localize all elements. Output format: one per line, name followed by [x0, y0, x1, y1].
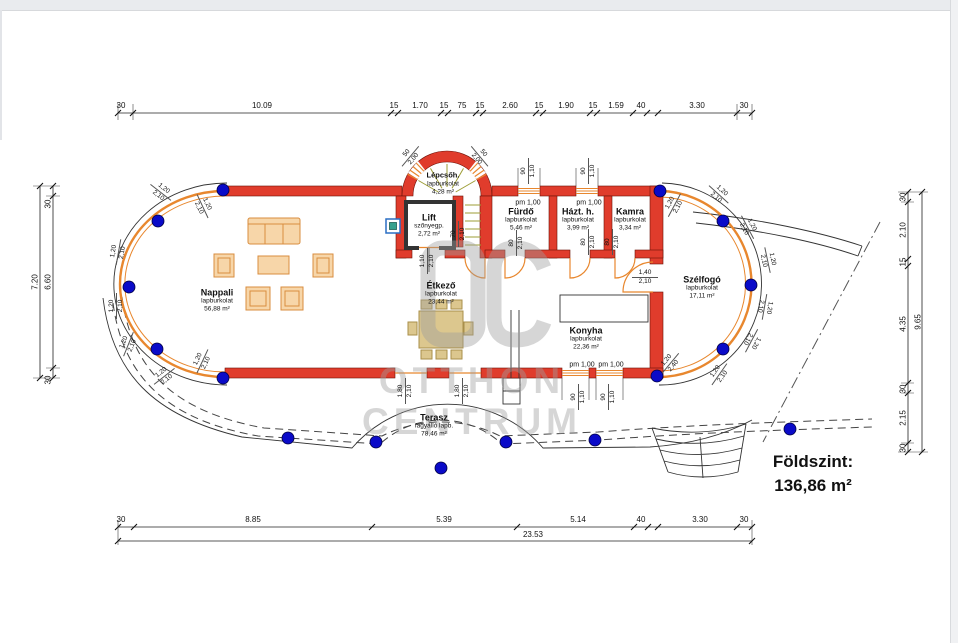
opening-tag-16: 1,802,10 [454, 378, 470, 404]
opening-tag-24: 901,10 [580, 158, 596, 184]
dim-top-5: 75 [458, 101, 467, 110]
dim-right-5: 2.15 [899, 410, 908, 426]
door-swings [465, 258, 653, 292]
pm-tag-2: pm 1,00 [569, 362, 594, 369]
opening-tag-18: 702,10 [450, 221, 466, 247]
dim-top-7: 2.60 [502, 101, 518, 110]
property-line [763, 222, 880, 442]
opening-tag-26: 901,10 [600, 384, 616, 410]
dim-left-0: 30 [44, 200, 53, 209]
pm-tag-1: pm 1,00 [576, 200, 601, 207]
dim-right-2: 15 [899, 258, 908, 267]
dim-top-1: 10.09 [252, 101, 272, 110]
dim-right-6: 30 [899, 444, 908, 453]
room-label-kamra: Kamra lapburkolat 3,34 m² [614, 207, 646, 232]
dim-bottom-4: 40 [637, 515, 646, 524]
dim-left-1: 6.60 [44, 274, 53, 290]
dim-top-14: 30 [740, 101, 749, 110]
dim-top-0: 30 [117, 101, 126, 110]
dim-top-6: 15 [476, 101, 485, 110]
opening-tag-17: 1,102,10 [419, 248, 435, 274]
dim-right-4: 30 [899, 385, 908, 394]
dim-bottom-5: 3.30 [692, 515, 708, 524]
dim-bottom-1: 8.85 [245, 515, 261, 524]
dim-top-12: 40 [637, 101, 646, 110]
opening-tag-23: 901,10 [520, 158, 536, 184]
dim-left-2: 30 [44, 376, 53, 385]
opening-tag-25: 901,10 [570, 384, 586, 410]
dim-right-3: 4.35 [899, 316, 908, 332]
dim-right-1: 2.10 [899, 222, 908, 238]
room-label-hazt: Házt. h. lapburkolat 3,99 m² [562, 207, 594, 232]
dim-top-4: 15 [440, 101, 449, 110]
opening-tag-15: 1,802,10 [397, 378, 413, 404]
pm-tag-3: pm 1,00 [598, 362, 623, 369]
dim-top-2: 15 [390, 101, 399, 110]
opening-tag-22: 1,402,10 [632, 269, 658, 285]
meter-box-icon [386, 219, 400, 233]
dim-top-9: 1.90 [558, 101, 574, 110]
exterior-stairs [652, 424, 746, 478]
pm-tag-0: pm 1,00 [515, 200, 540, 207]
dim-right-outer: 9.65 [914, 314, 923, 330]
floorplan-page: OTTHON CENTRUM Lépcsőh. lapburkolat 4,28… [0, 0, 958, 643]
room-label-furdo: Fürdő lapburkolat 5,46 m² [505, 207, 537, 232]
room-label-konyha: Konyha lapburkolat 22,36 m² [569, 326, 602, 351]
opening-tag-20: 802,10 [580, 229, 596, 255]
dim-top-11: 1.59 [608, 101, 624, 110]
opening-tag-21: 802,10 [604, 229, 620, 255]
dim-bottom-2: 5.39 [436, 515, 452, 524]
floor-summary-area: 136,86 m² [773, 474, 853, 498]
floorplan-drawing [0, 0, 958, 643]
dim-left-outer: 7.20 [31, 274, 40, 290]
opening-tag-3: 1,202,10 [108, 293, 124, 319]
room-label-lepcso: Lépcsőh. lapburkolat 4,28 m² [427, 171, 460, 196]
dim-bottom-0: 30 [117, 515, 126, 524]
dim-top-8: 15 [535, 101, 544, 110]
floor-summary-label: Földszint: [773, 450, 853, 474]
dim-bottom-3: 5.14 [570, 515, 586, 524]
floor-summary: Földszint: 136,86 m² [773, 450, 853, 498]
room-label-szelfogo: Szélfogó lapburkolat 17,11 m² [683, 275, 721, 300]
room-label-nappali: Nappali lapburkolat 56,88 m² [201, 288, 234, 313]
dim-top-10: 15 [589, 101, 598, 110]
dining-set [408, 300, 473, 359]
room-label-terasz: Terasz fagyálló lapb. 78,46 m² [415, 413, 453, 438]
room-label-lift: Lift szőnyegp. 2,72 m² [414, 213, 444, 238]
room-label-etkezo: Étkező lapburkolat 23,44 m² [425, 281, 457, 306]
dim-right-0: 30 [899, 193, 908, 202]
dim-top-13: 3.30 [689, 101, 705, 110]
dim-top-3: 1.70 [412, 101, 428, 110]
dim-bottom-total: 23.53 [523, 530, 543, 539]
dim-bottom-6: 30 [740, 515, 749, 524]
opening-tag-19: 802,10 [508, 230, 524, 256]
